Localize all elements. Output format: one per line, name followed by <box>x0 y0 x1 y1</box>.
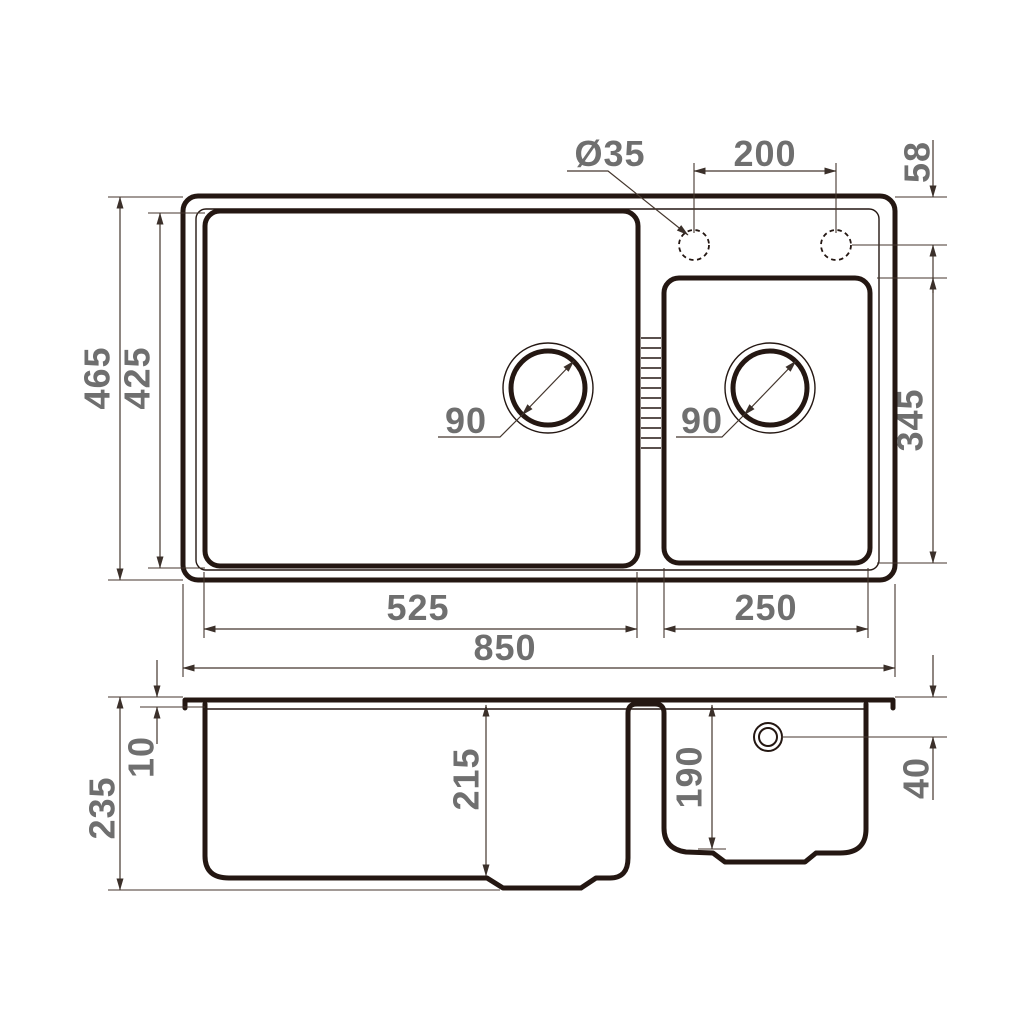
faucet-edge-offset-label: 58 <box>897 141 938 183</box>
overall-depth-label: 465 <box>77 346 118 409</box>
sink-drawing-page: Ø35 200 58 465 425 <box>0 0 1024 1024</box>
dim-faucet-edge-offset: 58 <box>852 140 947 293</box>
section-rim <box>185 700 893 708</box>
overflow-offset-label: 40 <box>896 757 937 799</box>
section-bowl-profile <box>205 704 866 888</box>
divider-hatch <box>641 338 661 448</box>
main-bowl <box>205 211 638 566</box>
section-view: 10 235 215 190 40 <box>82 655 948 890</box>
dim-faucet-diameter: Ø35 <box>567 133 688 235</box>
main-drain-diameter-label: 90 <box>445 400 487 441</box>
sink-outline <box>183 196 895 580</box>
dim-rim-thickness: 10 <box>108 660 205 778</box>
rim-thickness-label: 10 <box>121 736 162 778</box>
small-bowl-depth-plan-label: 345 <box>890 388 931 451</box>
overall-height-label: 235 <box>82 776 123 839</box>
small-bowl-depth-label: 190 <box>669 745 710 808</box>
faucet-hole-left <box>679 230 709 260</box>
small-drain-diameter-label: 90 <box>681 400 723 441</box>
main-bowl-depth-label: 215 <box>446 747 487 810</box>
small-drain-diameter-arrow <box>744 361 796 415</box>
main-bowl-width-label: 525 <box>386 587 449 628</box>
dim-faucet-spacing: 200 <box>694 133 836 233</box>
small-bowl-width-label: 250 <box>734 587 797 628</box>
rim-inner-edge <box>196 209 879 570</box>
dim-small-bowl-depth-plan: 345 <box>877 278 947 563</box>
sink-technical-drawing: Ø35 200 58 465 425 <box>0 0 1024 1024</box>
dim-main-bowl-depth-plan: 425 <box>117 213 206 568</box>
dim-small-bowl-depth: 190 <box>669 705 727 849</box>
dim-main-bowl-depth: 215 <box>446 705 487 876</box>
main-drain-diameter-arrow <box>522 361 574 415</box>
main-bowl-depth-plan-label: 425 <box>117 346 158 409</box>
overflow-hole <box>754 723 782 751</box>
faucet-hole-right <box>821 230 851 260</box>
faucet-spacing-label: 200 <box>733 133 796 174</box>
top-view: Ø35 200 58 465 425 <box>77 133 948 677</box>
dim-overall-height: 235 <box>82 697 501 890</box>
overall-width-label: 850 <box>473 627 536 668</box>
faucet-diameter-label: Ø35 <box>574 133 645 174</box>
